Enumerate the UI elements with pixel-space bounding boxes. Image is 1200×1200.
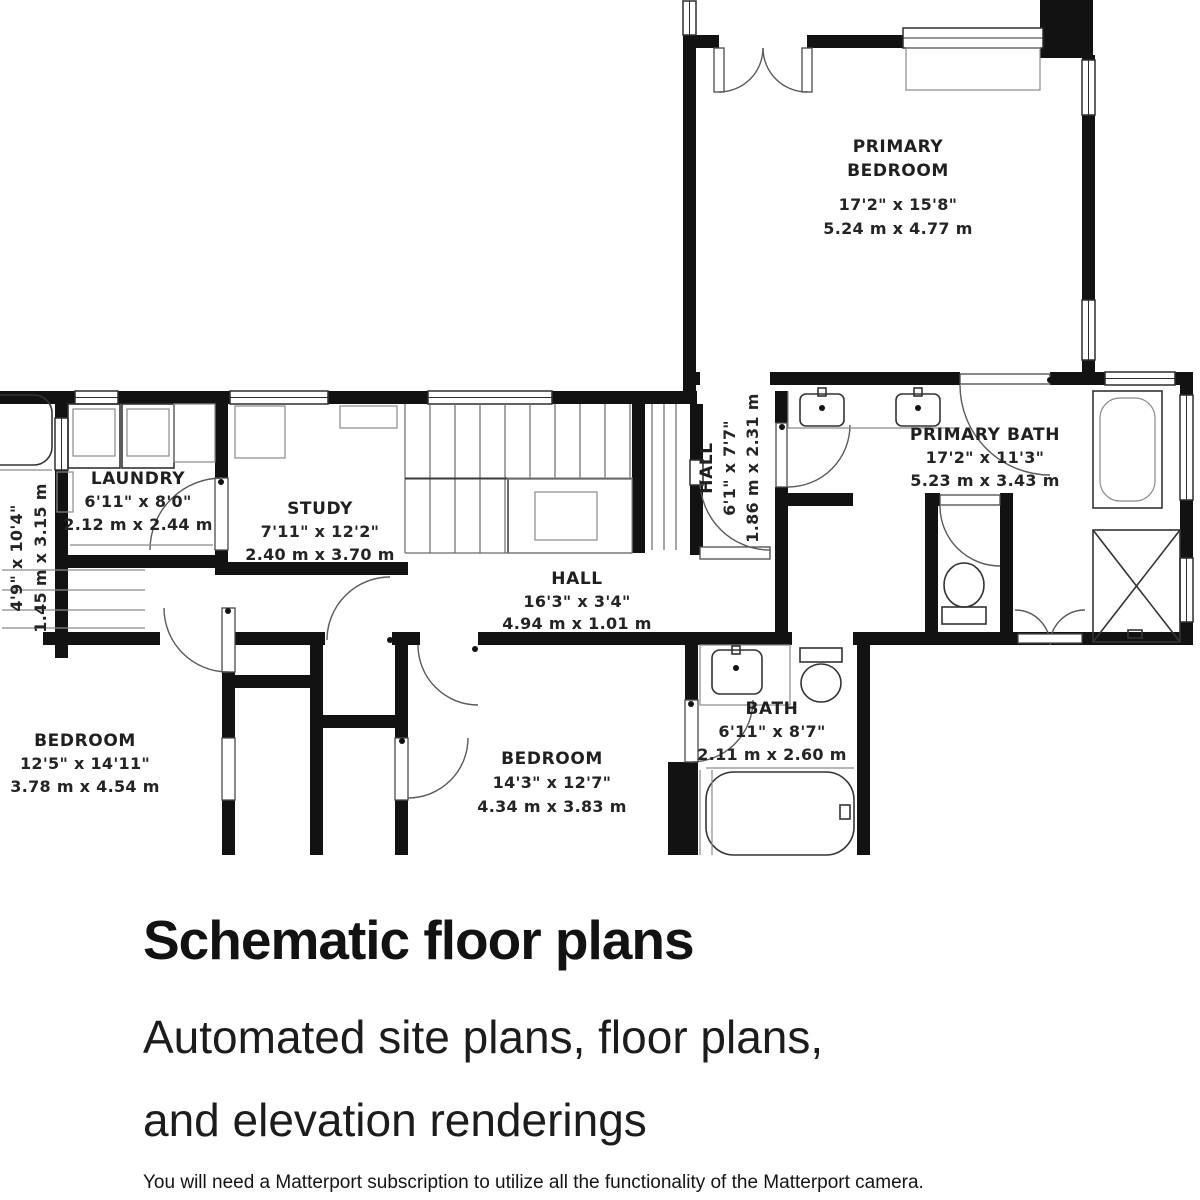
page: PRIMARY BEDROOM 17'2" x 15'8" 5.24 m x 4… [0,0,1200,1200]
footnote: You will need a Matterport subscription … [143,1172,924,1194]
svg-text:2.40 m x 3.70 m: 2.40 m x 3.70 m [245,545,394,564]
svg-text:14'3" x 12'7": 14'3" x 12'7" [493,773,612,792]
svg-text:6'11" x 8'7": 6'11" x 8'7" [718,722,825,741]
window-icon [75,391,118,404]
svg-text:5.24 m x 4.77 m: 5.24 m x 4.77 m [823,219,972,238]
window-icon [230,391,328,404]
svg-text:4'9" x 10'4": 4'9" x 10'4" [7,504,26,611]
svg-text:STUDY: STUDY [287,499,353,519]
room-label-bedroom-bottom: BEDROOM 14'3" x 12'7" 4.34 m x 3.83 m [477,749,626,816]
subtitle: Automated site plans, floor plans, and e… [143,996,823,1162]
room-labels: PRIMARY BEDROOM 17'2" x 15'8" 5.24 m x 4… [7,137,1060,816]
floor-plan: PRIMARY BEDROOM 17'2" x 15'8" 5.24 m x 4… [0,0,1200,880]
door-icon [776,423,850,487]
room-label-primary-bedroom: PRIMARY BEDROOM 17'2" x 15'8" 5.24 m x 4… [823,137,972,238]
door-icon [327,577,393,643]
svg-text:HALL: HALL [551,569,602,589]
svg-text:2.11 m x 2.60 m: 2.11 m x 2.60 m [697,745,846,764]
svg-text:BATH: BATH [745,699,798,719]
stair-railing [652,404,676,550]
svg-text:5.23 m x 3.43 m: 5.23 m x 3.43 m [910,471,1059,490]
door-icon [395,738,468,800]
window-icon [428,391,552,404]
svg-text:PRIMARY BATH: PRIMARY BATH [910,425,1060,445]
svg-text:17'2" x 11'3": 17'2" x 11'3" [926,448,1045,467]
window-icon [1082,300,1095,360]
svg-text:17'2" x 15'8": 17'2" x 15'8" [839,195,958,214]
room-label-bedroom-left: BEDROOM 12'5" x 14'11" 3.78 m x 4.54 m [10,731,159,796]
study-shelf [340,406,397,428]
door-icon [940,495,1000,566]
dryer [122,404,174,468]
svg-text:16'3" x 3'4": 16'3" x 3'4" [523,592,630,611]
svg-text:12'5" x 14'11": 12'5" x 14'11" [20,754,150,773]
window-icon [1082,60,1095,115]
shower [1093,530,1180,642]
study-closet [235,406,285,458]
window-icon [1105,372,1175,385]
room-label-study: STUDY 7'11" x 12'2" 2.40 m x 3.70 m [245,499,394,564]
bathtub [1093,391,1162,508]
double-door-icon [714,48,812,92]
laundry-counter [174,404,215,462]
svg-text:4.94 m x 1.01 m: 4.94 m x 1.01 m [502,614,651,633]
washer [68,404,120,468]
svg-text:BEDROOM: BEDROOM [34,731,136,751]
room-label-laundry: LAUNDRY 6'11" x 8'0" 2.12 m x 2.44 m [63,469,212,534]
svg-text:HALL: HALL [697,442,717,493]
svg-text:PRIMARY: PRIMARY [853,137,944,157]
toilet-icon [800,648,842,702]
page-title: Schematic floor plans [143,908,694,972]
room-label-hall: HALL 16'3" x 3'4" 4.94 m x 1.01 m [502,569,651,633]
subtitle-line-2: and elevation renderings [143,1079,823,1162]
window-icon [55,418,68,470]
svg-text:BEDROOM: BEDROOM [847,161,949,181]
sink-icon [896,388,940,426]
room-label-hall-upper: HALL 6'1" x 7'7" 1.86 m x 2.31 m [697,393,762,542]
svg-text:4.34 m x 3.83 m: 4.34 m x 3.83 m [477,797,626,816]
window-icon [1180,395,1193,500]
svg-text:6'11" x 8'0": 6'11" x 8'0" [84,492,191,511]
svg-text:6'1" x 7'7": 6'1" x 7'7" [720,420,739,516]
svg-text:2.12 m x 2.44 m: 2.12 m x 2.44 m [63,515,212,534]
shower-doors-icon [1015,610,1085,645]
door-icon [164,608,235,672]
window-icon [1180,558,1193,622]
svg-text:3.78 m x 4.54 m: 3.78 m x 4.54 m [10,777,159,796]
vanity-counter [788,391,960,428]
svg-text:BEDROOM: BEDROOM [501,749,603,769]
subtitle-line-1: Automated site plans, floor plans, [143,996,823,1079]
toilet-icon [942,563,986,624]
room-label-bath: BATH 6'11" x 8'7" 2.11 m x 2.60 m [697,699,846,764]
bathtub [706,768,854,855]
sink-icon [700,645,790,705]
svg-text:1.86 m x 2.31 m: 1.86 m x 2.31 m [743,393,762,542]
window-icon [903,28,1043,90]
svg-text:7'11" x 12'2": 7'11" x 12'2" [261,522,380,541]
door-icon [418,645,478,705]
closet-door [222,738,235,800]
room-label-primary-bath: PRIMARY BATH 17'2" x 11'3" 5.23 m x 3.43… [910,425,1060,490]
window-icon [683,1,696,35]
svg-text:LAUNDRY: LAUNDRY [91,469,185,489]
svg-text:1.45 m x 3.15 m: 1.45 m x 3.15 m [31,483,50,632]
sink-icon [800,388,844,426]
